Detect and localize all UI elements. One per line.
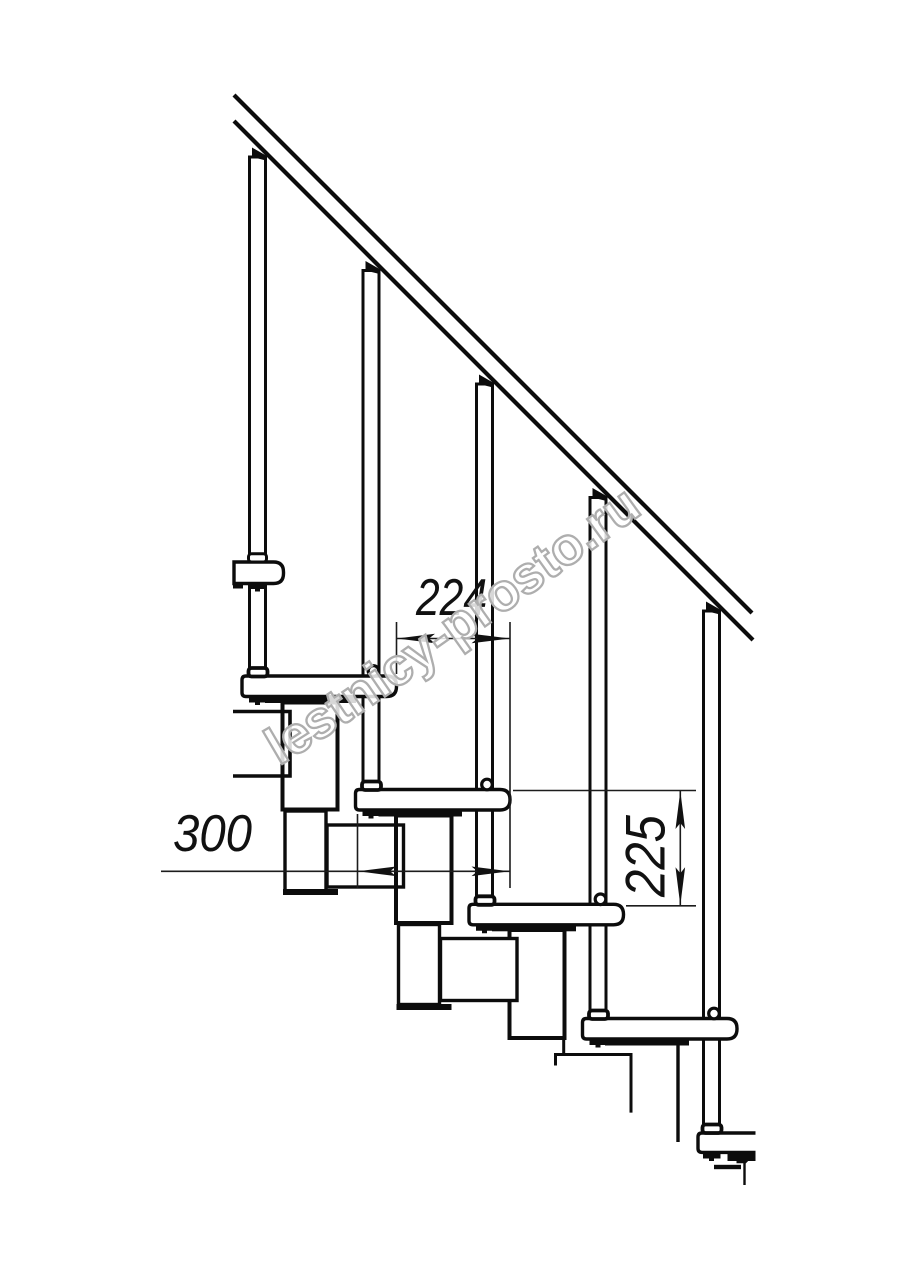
svg-text:300: 300 bbox=[173, 805, 252, 863]
svg-text:225: 225 bbox=[614, 814, 677, 898]
